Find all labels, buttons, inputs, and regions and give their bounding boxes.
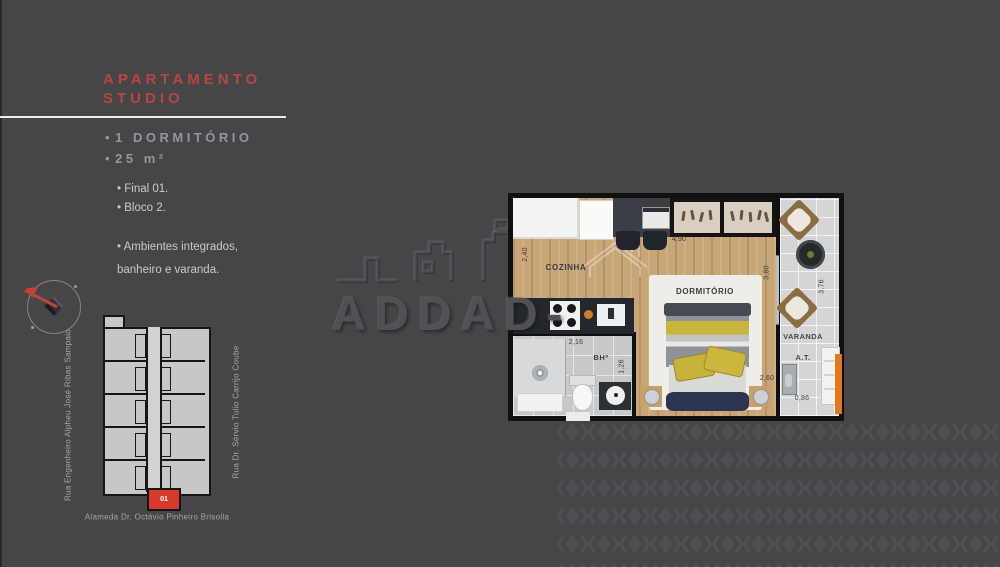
- clothes-icon: [749, 212, 753, 222]
- page-title-line1: APARTAMENTO: [103, 70, 261, 89]
- title-divider: [0, 116, 286, 118]
- street-label-right: Rua Dr. Sérvio Tulio Carrijo Coube: [232, 346, 241, 479]
- wardrobe-panel: [724, 202, 772, 233]
- room-label-kitchen: COZINHA: [534, 263, 598, 272]
- clothes-icon: [681, 211, 685, 221]
- street-label-left: Rua Engenheiro Alpheu José Ribas Sampaio: [64, 329, 73, 501]
- lamp-icon: [644, 389, 660, 405]
- plant-icon: [584, 310, 593, 319]
- page-title: APARTAMENTO STUDIO: [103, 70, 261, 108]
- floor-divider: [105, 360, 146, 362]
- ac-unit: [782, 364, 797, 395]
- shower-head-icon: [532, 365, 548, 381]
- entry-door-gap: [566, 412, 590, 421]
- bathroom-vanity: [599, 382, 631, 410]
- site-plan: 01: [0, 300, 300, 530]
- detail-list: Final 01. Bloco 2.: [117, 180, 168, 218]
- bed-footer: [666, 392, 749, 411]
- floor-divider: [105, 426, 146, 428]
- clothes-icon: [739, 210, 743, 220]
- floor-divider: [105, 393, 146, 395]
- floor-divider: [105, 459, 146, 461]
- dim-kitchen-depth: 2,40: [522, 241, 529, 268]
- kitchen-counter-top: [513, 198, 579, 239]
- dim-bedroom-depth: 3,80: [764, 261, 771, 285]
- toilet: [569, 375, 594, 410]
- clothes-icon: [757, 210, 762, 220]
- floor-divider: [160, 393, 205, 395]
- shelf-slat: [824, 374, 835, 376]
- floor-divider: [160, 459, 205, 461]
- faucet-icon: [608, 308, 614, 319]
- floor-divider: [160, 360, 205, 362]
- unit-outline: [160, 466, 171, 490]
- unit-outline: [135, 400, 146, 424]
- wardrobe: [670, 198, 776, 237]
- unit-outline: [135, 367, 146, 391]
- lamp-icon: [753, 389, 769, 405]
- room-label-bathroom: BHº: [588, 353, 614, 362]
- clothes-icon: [708, 210, 712, 220]
- corner-pattern: [557, 418, 1000, 567]
- dim-bathroom-depth: 1,26: [619, 355, 626, 379]
- description-line: banheiro e varanda.: [117, 259, 238, 282]
- orange-wall-strip: [835, 354, 842, 414]
- shower-bench: [517, 393, 563, 412]
- bed-headboard: [664, 303, 751, 316]
- armchair-cushion: [785, 206, 813, 234]
- table-plant-icon: [807, 251, 814, 258]
- unit-outline: [160, 433, 171, 457]
- sliding-door: [776, 255, 779, 325]
- dining-chair: [643, 231, 667, 250]
- coffee-table: [796, 240, 825, 269]
- clothes-icon: [730, 211, 735, 221]
- compass-tick: [74, 285, 77, 288]
- watermark-text: ADDAD-: [332, 286, 571, 341]
- shower-dot: [538, 371, 542, 375]
- street-label-bottom: Alameda Dr. Octávio Pinheiro Brisolla: [85, 513, 230, 522]
- feature-item: 1 DORMITÓRIO: [105, 127, 253, 148]
- unit-outline: [160, 367, 171, 391]
- dining-chair: [616, 231, 640, 250]
- dim-bed-width: 2,60: [753, 375, 781, 382]
- armchair-cushion: [783, 294, 811, 322]
- vanity-faucet-icon: [614, 393, 618, 397]
- detail-item: Bloco 2.: [117, 199, 168, 218]
- clothes-icon: [764, 212, 769, 222]
- presentation-slide: APARTAMENTO STUDIO 1 DORMITÓRIO 25 m² Fi…: [0, 0, 1000, 567]
- wardrobe-panel: [674, 202, 720, 233]
- unit-outline: [135, 334, 146, 358]
- kitchen-sink: [597, 304, 625, 326]
- shelf-slat: [824, 388, 835, 390]
- floor-divider: [160, 426, 205, 428]
- unit-outline: [135, 466, 146, 490]
- table-appliance: [642, 207, 670, 229]
- balcony-wall-upper: [776, 193, 780, 255]
- room-label-balcony: VARANDA: [778, 332, 828, 341]
- unit-outline: [160, 400, 171, 424]
- toilet-bowl: [572, 384, 593, 411]
- room-label-technical-area: A.T.: [786, 353, 820, 362]
- feature-list: 1 DORMITÓRIO 25 m²: [105, 127, 253, 169]
- feature-item: 25 m²: [105, 148, 253, 169]
- fridge: [579, 200, 614, 240]
- shelf-slat: [824, 360, 835, 362]
- detail-item: Final 01.: [117, 180, 168, 199]
- description: Ambientes integrados, banheiro e varanda…: [117, 236, 238, 282]
- clothes-icon: [690, 210, 695, 220]
- unit-outline: [160, 334, 171, 358]
- ac-unit-inner: [785, 374, 792, 387]
- dim-balcony-depth: 3,76: [819, 275, 826, 299]
- description-line: Ambientes integrados,: [117, 236, 238, 259]
- clothes-icon: [699, 212, 704, 222]
- unit-number: 01: [160, 496, 168, 503]
- dim-top-width: 4,90: [665, 236, 693, 243]
- unit-highlight: 01: [147, 488, 181, 511]
- room-label-bedroom: DORMITÓRIO: [664, 287, 746, 296]
- page-title-line2: STUDIO: [103, 89, 261, 108]
- bathroom-right-wall: [632, 332, 636, 421]
- dim-balcony-width: 0,86: [784, 395, 820, 402]
- unit-outline: [135, 433, 146, 457]
